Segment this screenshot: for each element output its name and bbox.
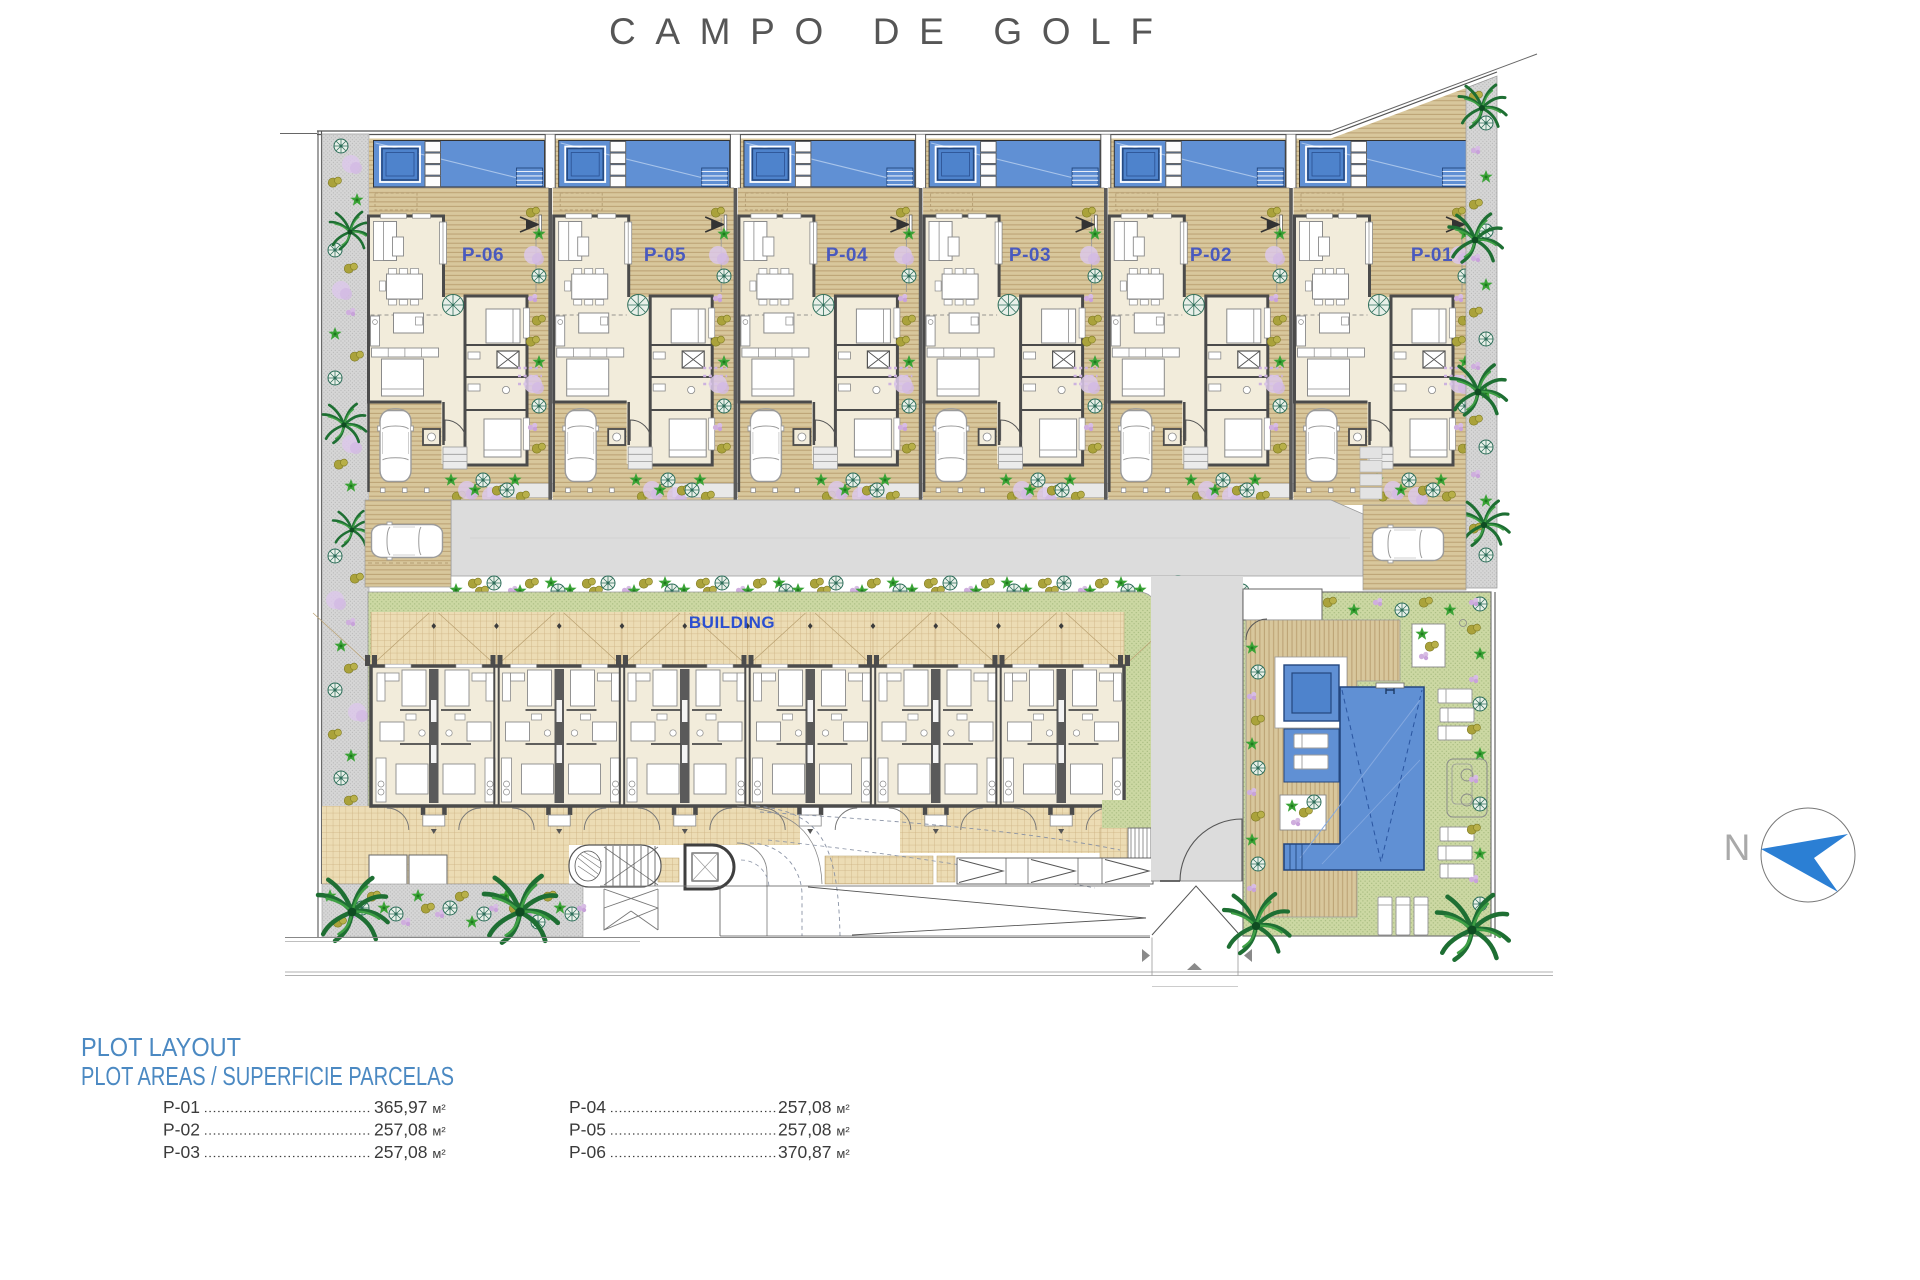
svg-text:P-05: P-05	[569, 1120, 606, 1140]
svg-text:P-06: P-06	[569, 1142, 606, 1162]
svg-text:P-06: P-06	[462, 245, 504, 266]
svg-text:BUILDING: BUILDING	[689, 613, 775, 632]
svg-text:P-04: P-04	[826, 245, 868, 266]
svg-text:P-02: P-02	[1190, 245, 1232, 266]
svg-text:P-01: P-01	[163, 1097, 200, 1117]
svg-text:N: N	[1724, 827, 1751, 868]
svg-text:PLOT AREAS / SUPERFICIE PARCEL: PLOT AREAS / SUPERFICIE PARCELAS	[81, 1061, 454, 1091]
svg-text:P-03: P-03	[163, 1142, 200, 1162]
svg-text:P-02: P-02	[163, 1120, 200, 1140]
svg-text:P-04: P-04	[569, 1097, 606, 1117]
svg-text:P-03: P-03	[1009, 245, 1051, 266]
svg-text:P-01: P-01	[1411, 245, 1453, 266]
svg-text:PLOT LAYOUT: PLOT LAYOUT	[81, 1032, 241, 1062]
svg-text:P-05: P-05	[644, 245, 686, 266]
